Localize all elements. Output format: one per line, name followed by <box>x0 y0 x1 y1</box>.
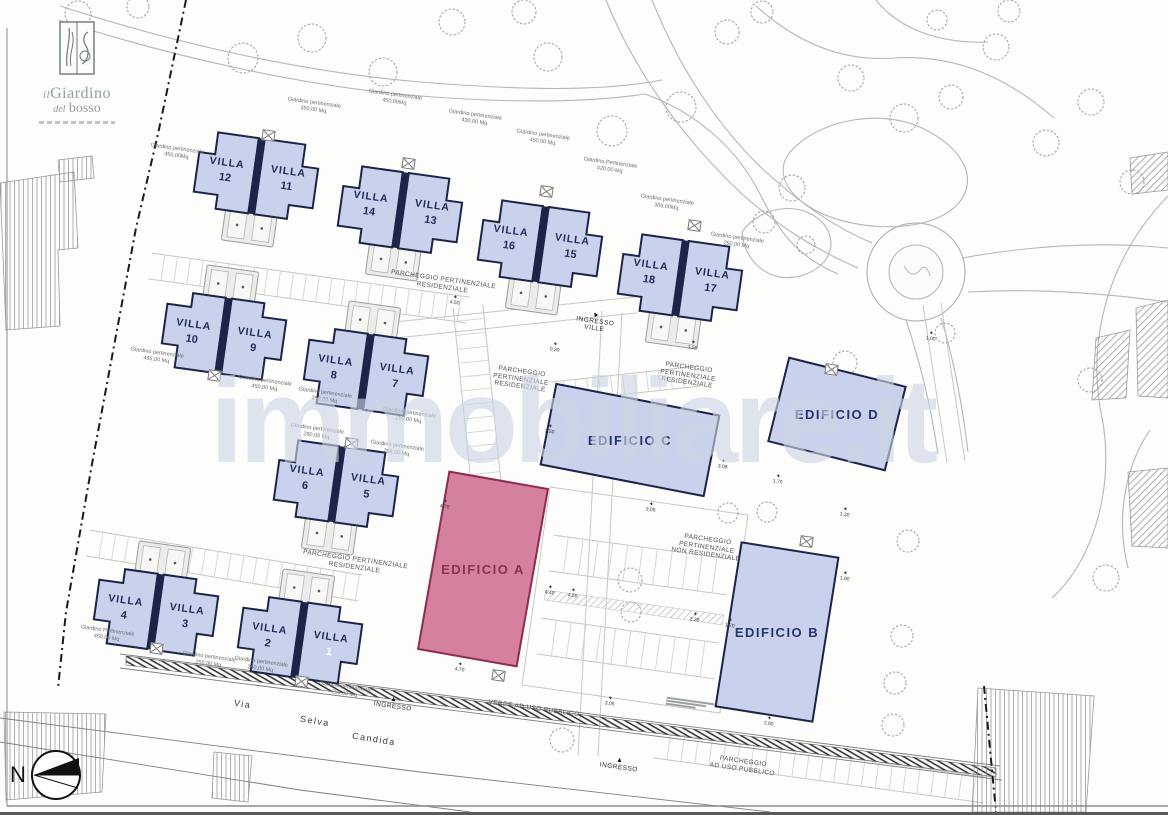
existing-building-hatched <box>212 752 252 802</box>
pair-6-5: VILLA6VILLA5 <box>267 438 401 566</box>
parking-stall-tick <box>712 557 717 593</box>
parking-stall-tick <box>303 275 307 301</box>
villa-unit-right <box>297 603 364 686</box>
north-arrow: N <box>10 748 82 802</box>
parking-stall-tick <box>670 637 675 673</box>
pair-12-11: VILLA12VILLA11 <box>187 130 321 258</box>
parking-stall-tick <box>566 622 571 658</box>
parking-stall-tick <box>646 372 648 392</box>
tree-icon <box>882 714 904 736</box>
roundabout-inner <box>889 245 943 299</box>
dimension-marker: ✦4,55 <box>567 588 578 599</box>
tree-icon <box>1093 565 1119 591</box>
parking-stall-tick <box>634 373 636 393</box>
dimension-marker: ✦1,30 <box>839 507 850 518</box>
parking-stall-tick <box>623 545 628 581</box>
dimension-marker: ✦4,40 <box>544 585 555 596</box>
existing-building-hatched <box>1128 468 1168 548</box>
villa-number: 18 <box>642 273 656 287</box>
parking-stall-tick <box>467 444 497 447</box>
existing-building-hatched <box>1130 152 1168 194</box>
tree-icon <box>751 1 773 23</box>
parking-stall-tick <box>463 402 493 405</box>
utility-box-icon <box>824 363 838 376</box>
parking-stall-tick <box>834 757 838 783</box>
logo: ilGiardino del bosso <box>22 20 132 124</box>
parking-stall-tick <box>457 346 487 349</box>
parking-stall-tick <box>459 360 489 363</box>
tree-icon <box>779 175 805 201</box>
parking-stall-tick <box>806 753 810 779</box>
parking-stall-tick <box>563 537 568 573</box>
parking-stall-tick <box>820 755 824 781</box>
tree-icon <box>998 0 1020 22</box>
existing-building-hatched <box>58 156 94 182</box>
parking-stall-tick <box>640 633 645 669</box>
parking-stall-tick <box>653 549 658 585</box>
dimension-marker: ✦3,05 <box>604 696 615 707</box>
tree-icon <box>1078 89 1104 115</box>
dimension-marker: ✦2,50 <box>544 424 555 435</box>
parking-stall-tick <box>700 641 705 677</box>
utility-box-icon <box>539 185 553 198</box>
tree-icon <box>1033 130 1059 156</box>
parking-stall-tick <box>578 539 583 575</box>
north-compass-icon <box>28 748 82 802</box>
parking-stall-tick <box>240 556 244 582</box>
tree-icon <box>439 9 465 35</box>
utility-box-icon <box>491 669 505 682</box>
parking-stall-tick <box>889 764 893 790</box>
parking-stall-tick <box>227 554 231 580</box>
parking-stall-tick <box>161 255 165 281</box>
logo-emblem-icon <box>57 20 97 78</box>
dimension-marker: ✦1,00 <box>925 331 936 342</box>
parking-stall-tick <box>638 547 643 583</box>
edificio-b-label: EDIFICIO B <box>729 550 825 714</box>
parking-stall-tick <box>623 374 625 394</box>
parking-stall-tick <box>697 555 702 591</box>
tree-icon <box>597 116 627 146</box>
dimension-marker: ✦2,35 <box>689 612 700 623</box>
road-path <box>968 291 1168 302</box>
tree-icon <box>983 34 1009 60</box>
tree-icon <box>890 104 918 132</box>
tree-icon <box>891 625 913 647</box>
tree-icon <box>512 0 536 24</box>
road-path <box>876 0 988 42</box>
parking-stall-tick <box>668 551 673 587</box>
dimension-marker: ✦3,08 <box>717 459 728 470</box>
utility-box-icon <box>687 219 701 232</box>
tree-icon <box>550 728 574 752</box>
road-path <box>783 118 967 227</box>
parking-stall-tick <box>655 635 660 671</box>
utility-box-icon <box>149 642 163 655</box>
villa-number: 17 <box>703 282 717 296</box>
parking-stall-tick <box>462 388 492 391</box>
tree-icon <box>757 502 777 522</box>
parking-band-edge <box>923 305 947 463</box>
dimension-marker: ✦4,50 <box>449 295 460 306</box>
villa-number: 15 <box>563 248 577 262</box>
logo-title-line2: del bosso <box>22 101 132 117</box>
parking-stall-tick <box>945 772 949 798</box>
existing-building-hatched <box>0 172 78 330</box>
parking-stall-tick <box>460 374 490 377</box>
utility-box-icon <box>799 535 813 548</box>
road-path <box>756 6 1054 118</box>
parking-stall-tick <box>792 751 796 777</box>
tree-icon <box>298 24 326 52</box>
utility-box-icon <box>207 369 221 382</box>
villa-number: 10 <box>185 333 199 347</box>
utility-box-icon <box>401 157 415 170</box>
villa-unit-right <box>363 335 430 418</box>
parking-stall-tick <box>682 553 687 589</box>
parking-stall-tick <box>596 627 601 663</box>
parking-stall-tick <box>466 430 496 433</box>
tree-icon <box>534 43 562 71</box>
edificio-a: EDIFICIO A <box>417 471 549 668</box>
edificio-c-label: EDIFICIO C <box>548 400 712 480</box>
parking-stall-tick <box>551 620 556 656</box>
tree-icon <box>897 530 919 552</box>
parking-stall-tick <box>469 458 499 461</box>
existing-building-hatched <box>972 688 1094 812</box>
parking-stall-tick <box>456 332 486 335</box>
road-path <box>606 0 858 268</box>
parking-band-edge <box>598 313 622 757</box>
dimension-marker: ✦0,30 <box>549 342 560 353</box>
dimension-marker: ✦1,50 <box>687 340 698 351</box>
dimension-marker: ✦1,90 <box>839 571 850 582</box>
edificio-b: EDIFICIO B <box>714 541 839 723</box>
dimension-marker: ✦4,70 <box>439 499 450 510</box>
parking-stall-tick <box>685 639 690 675</box>
dimension-marker: ✦2,00 <box>763 716 774 727</box>
parking-stall-tick <box>626 631 631 667</box>
utility-box-icon <box>261 129 275 142</box>
road-path <box>941 318 968 452</box>
tree-icon <box>715 20 739 44</box>
existing-building-hatched <box>1136 300 1168 398</box>
tree-icon <box>838 65 864 91</box>
parking-stall-tick <box>454 318 484 321</box>
parking-stall-tick <box>464 416 494 419</box>
road-hatched-strip <box>126 656 996 777</box>
villa-number: 12 <box>218 171 232 185</box>
tree-icon <box>927 10 947 30</box>
tree-icon <box>369 58 397 86</box>
villa-number: 11 <box>280 180 293 194</box>
site-plan: VILLA12VILLA11VILLA14VILLA13VILLA16VILLA… <box>0 0 1168 815</box>
dimension-marker: ✦3,05 <box>645 502 656 513</box>
parking-stall-tick <box>958 774 962 800</box>
parking-stall-tick <box>917 768 921 794</box>
road-path <box>962 245 1168 258</box>
dimension-marker: ✦4,70 <box>454 662 465 673</box>
parking-stall-tick <box>861 760 865 786</box>
tree-icon <box>939 85 963 109</box>
utility-box-icon <box>344 437 358 450</box>
parking-stall-tick <box>611 629 616 665</box>
tree-icon <box>228 43 258 73</box>
dimension-marker: ✦1,70 <box>724 618 735 629</box>
parking-stall-tick <box>593 541 598 577</box>
edificio-d-label: EDIFICIO D <box>778 372 896 456</box>
villa-number: 13 <box>423 214 437 228</box>
villa-unit-right <box>221 299 288 382</box>
dimension-marker: ✦1,70 <box>772 474 783 485</box>
tree-icon <box>884 672 906 694</box>
pair-18-17: VILLA18VILLA17 <box>611 232 745 360</box>
villa-number: 16 <box>502 239 516 253</box>
parking-stall-tick <box>903 766 907 792</box>
parking-stall-tick <box>875 762 879 788</box>
logo-tagline-placeholder <box>39 121 115 124</box>
parking-stall-tick <box>847 759 851 785</box>
parking-stall-tick <box>931 770 935 796</box>
tree-icon <box>127 0 149 18</box>
parking-stall-tick <box>778 749 782 775</box>
road-edge-line <box>120 668 1002 780</box>
north-label: N <box>10 762 26 788</box>
pair-16-15: VILLA16VILLA15 <box>471 198 605 326</box>
utility-box-icon <box>294 675 308 688</box>
